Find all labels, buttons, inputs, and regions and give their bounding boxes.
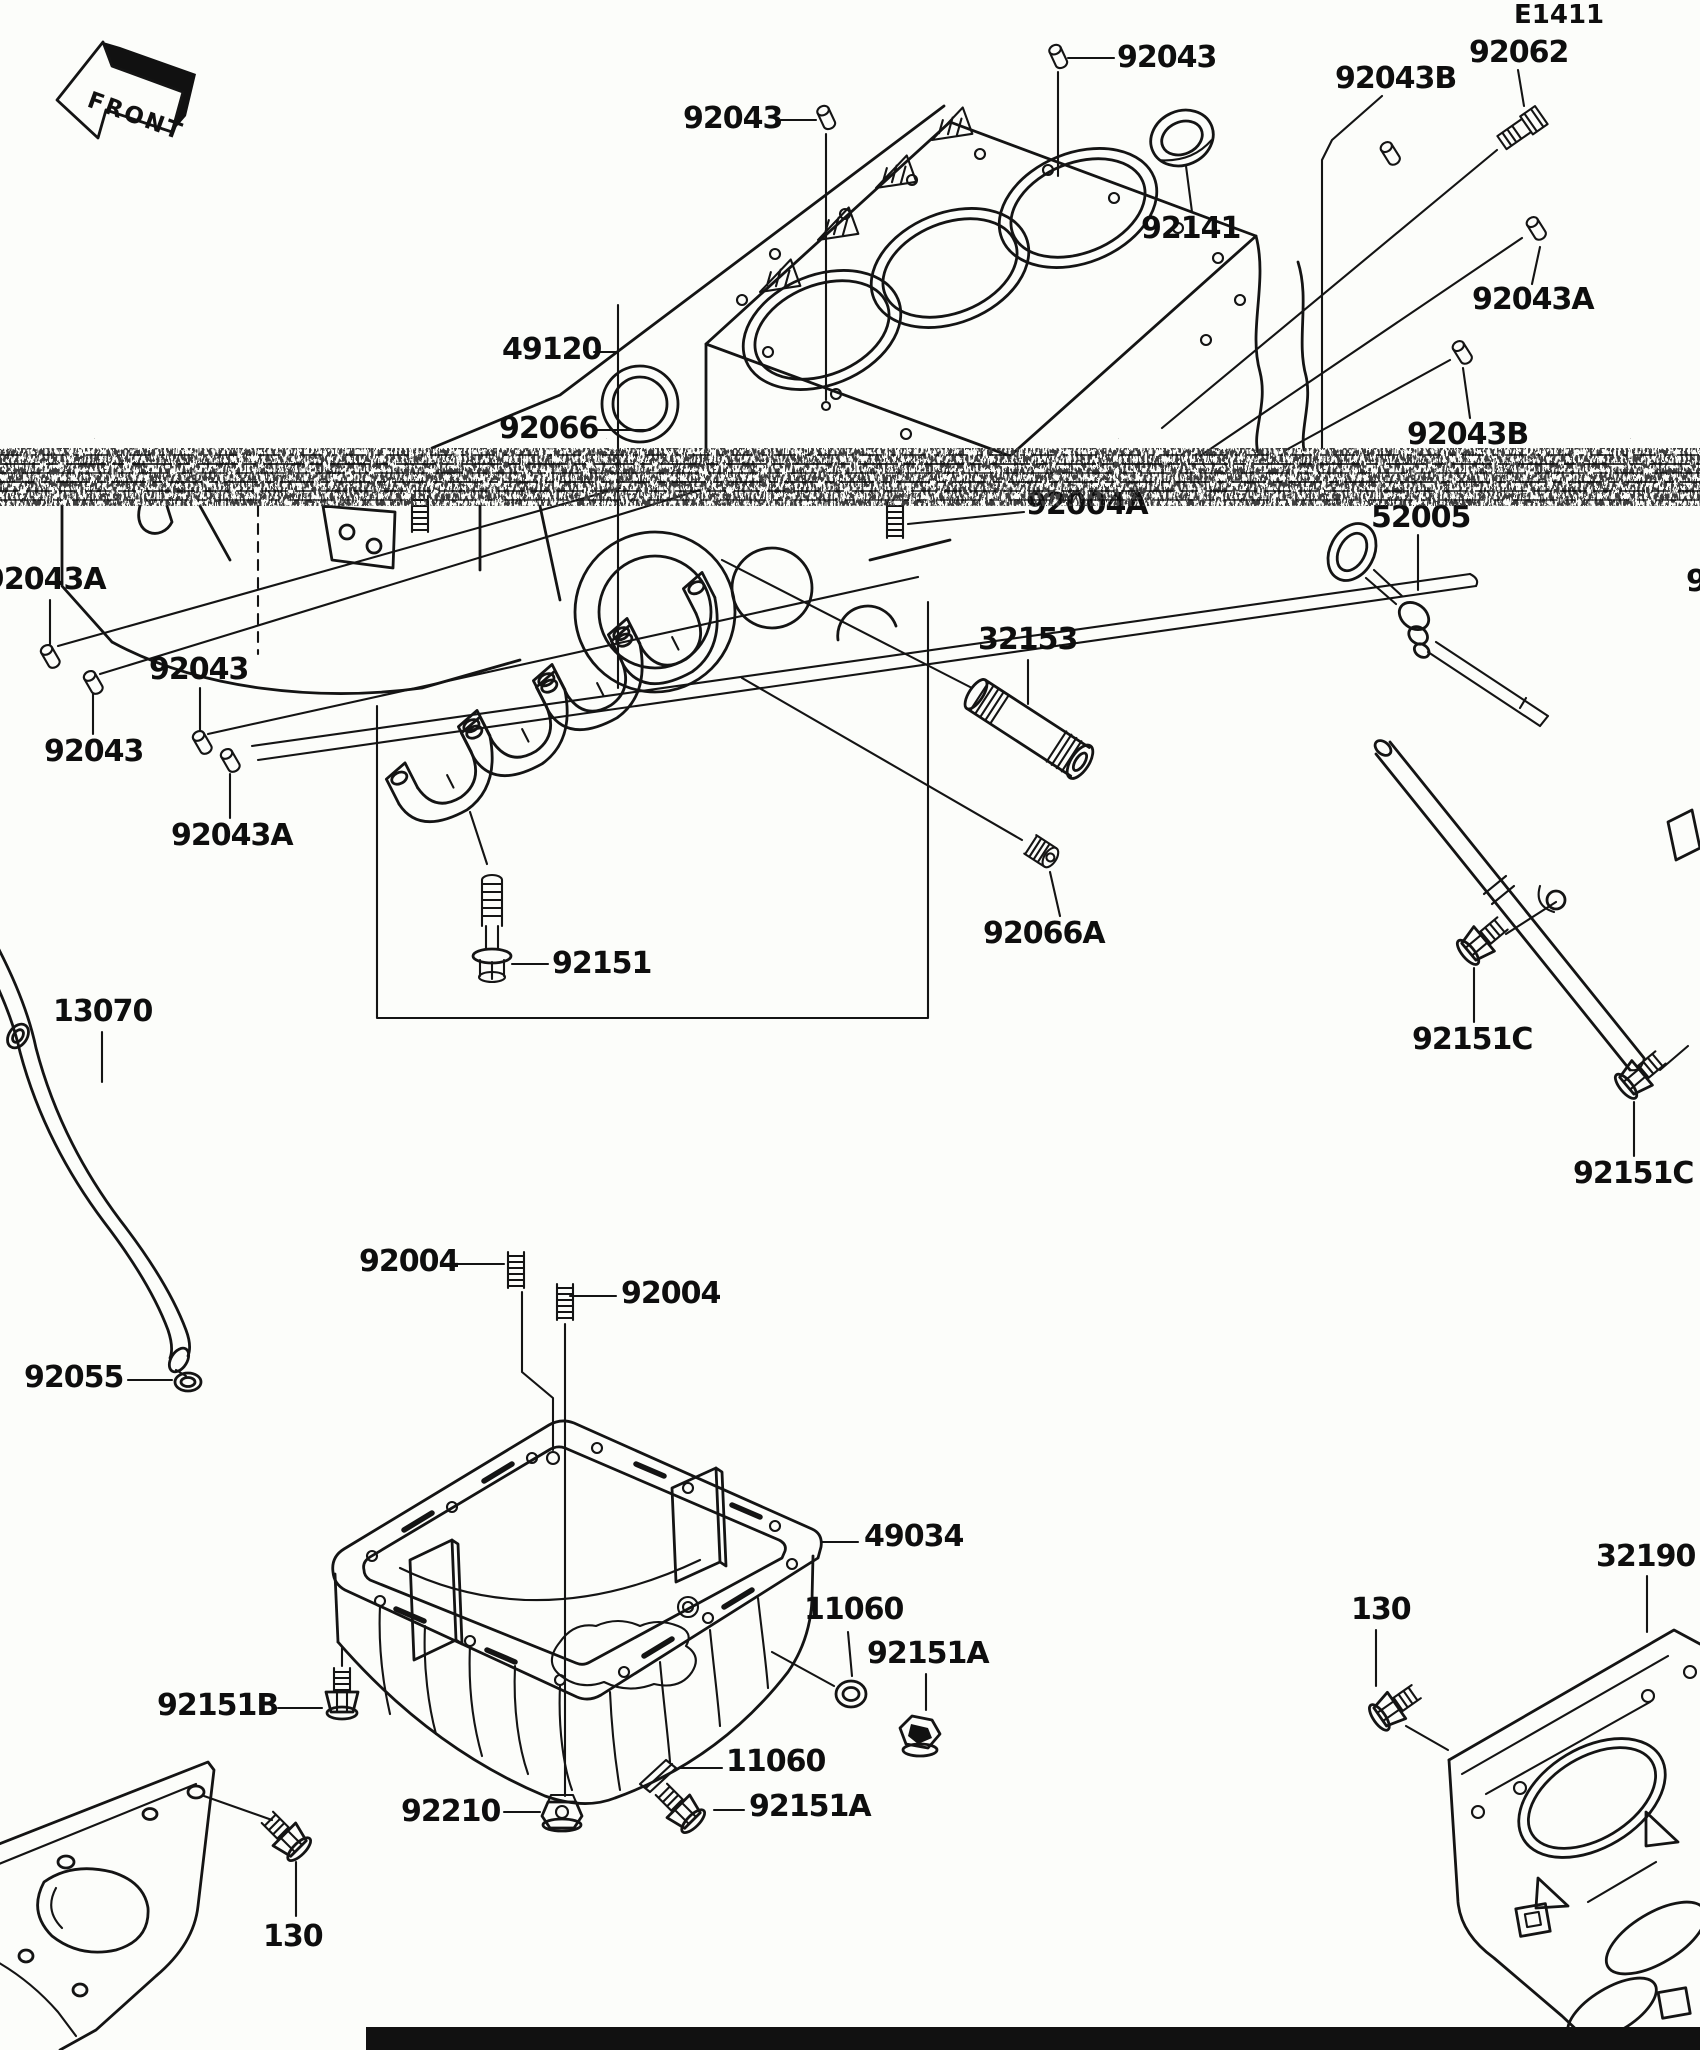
part-label-92151C-lower: 92151C	[1573, 1159, 1693, 1189]
part-label-49034: 49034	[864, 1522, 963, 1552]
part-label-92043A-center: 92043A	[171, 821, 293, 851]
part-label-52005: 52005	[1371, 503, 1470, 533]
part-label-92043B-top: 92043B	[1335, 64, 1456, 94]
part-label-92141: 92141	[1141, 214, 1240, 244]
part-label-92043-left-upper: 92043	[149, 655, 248, 685]
part-label-92004A: 92004A	[1026, 490, 1148, 520]
part-label-92066: 92066	[499, 414, 598, 444]
part-label-92043A-right: 92043A	[1472, 285, 1594, 315]
part-label-92066A: 92066A	[983, 919, 1105, 949]
part-label-92043B-right: 92043B	[1407, 420, 1528, 450]
part-label-32153: 32153	[978, 625, 1077, 655]
part-label-11060-upper: 11060	[804, 1595, 903, 1625]
part-label-32190: 32190	[1596, 1542, 1695, 1572]
part-label-92043-top-left: 92043	[683, 104, 782, 134]
part-label-92210: 92210	[401, 1797, 500, 1827]
part-label-13070: 13070	[53, 997, 152, 1027]
part-number-labels: E1411920439204392043B920629214192043A920…	[0, 0, 1700, 2050]
part-label-92151C-upper: 92151C	[1412, 1025, 1532, 1055]
part-label-92062: 92062	[1469, 38, 1568, 68]
part-label-11060-lower: 11060	[726, 1747, 825, 1777]
part-label-92151A-lower: 92151A	[749, 1792, 871, 1822]
part-label-cut-right-edge: 9	[1686, 567, 1700, 597]
part-label-92055: 92055	[24, 1363, 123, 1393]
part-label-130-right: 130	[1351, 1595, 1411, 1625]
part-label-92043A-left-edge: 92043A	[0, 565, 106, 595]
part-label-130-left: 130	[263, 1922, 323, 1952]
part-label-diagram-code: E1411	[1514, 2, 1604, 28]
part-label-92151: 92151	[552, 949, 651, 979]
part-label-92004-right: 92004	[621, 1279, 720, 1309]
part-label-49120: 49120	[502, 335, 601, 365]
part-label-92043-top-right: 92043	[1117, 43, 1216, 73]
part-label-92151B: 92151B	[157, 1691, 278, 1721]
part-label-92004-left: 92004	[359, 1247, 458, 1277]
part-label-92151A-upper: 92151A	[867, 1639, 989, 1669]
part-label-92043-left-lower: 92043	[44, 737, 143, 767]
